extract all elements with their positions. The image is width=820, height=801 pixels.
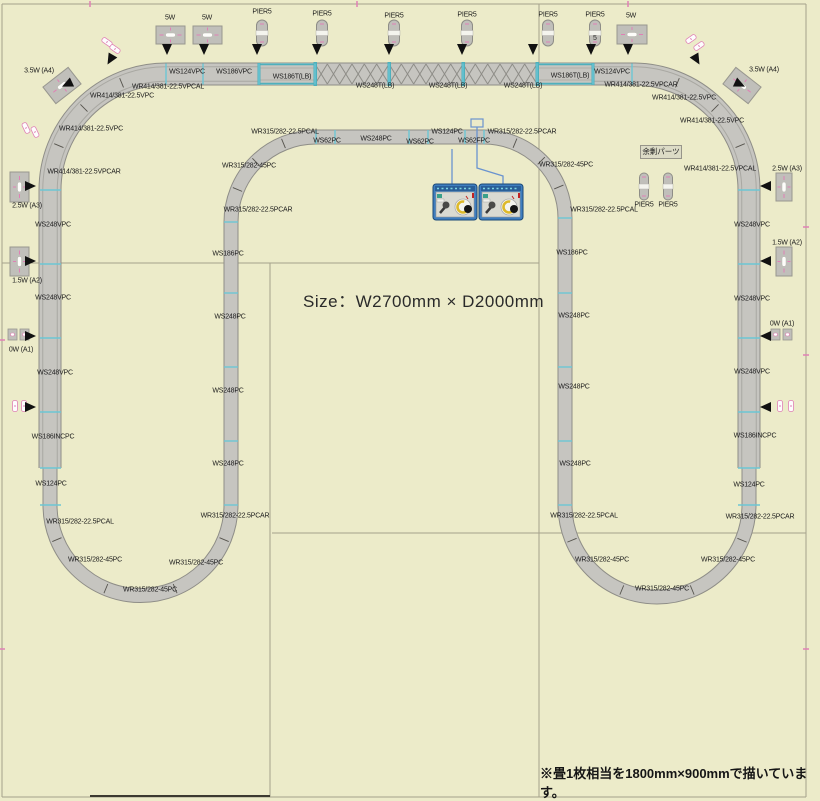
support-box-part: [774, 333, 778, 336]
controller-lever-knob: [489, 202, 496, 209]
pier-band: [542, 31, 554, 36]
pier-band: [256, 31, 268, 36]
joint-arrow-marker: [25, 181, 36, 191]
track-piece-label: WR315/282-45PC: [222, 163, 276, 170]
support-box-part: [203, 33, 213, 37]
mini-part-icon: [109, 44, 121, 54]
support-box-group: [776, 173, 792, 201]
track-piece-label: WR315/282-22.5PCAR: [201, 513, 270, 520]
track-piece-label: WS248PC: [559, 461, 590, 468]
track-piece-label: WS62PC: [313, 138, 341, 145]
joint-arrow-marker: [760, 331, 771, 341]
track-piece-label: WR315/282-45PC: [123, 587, 177, 594]
size-label: Size：W2700mm × D2000mm: [303, 287, 544, 312]
track-piece-label: WS248PC: [360, 136, 391, 143]
mini-part-icon: [13, 401, 18, 412]
support-box-group: [193, 26, 222, 44]
surplus-parts-label: 余剰パーツ: [640, 145, 682, 159]
track-piece-label: PIER5: [634, 202, 654, 209]
track-piece-label: WR315/282-22.5PCAL: [570, 207, 638, 214]
track-piece-label: WS62PC: [406, 139, 434, 146]
support-box-group: [617, 25, 647, 44]
track-piece-label: WS186VPC: [216, 69, 252, 76]
track-piece-label: PIER5: [658, 202, 678, 209]
track-piece-label: WR315/282-22.5PCAL: [46, 519, 114, 526]
joint-arrow-marker: [760, 402, 771, 412]
track-piece-label: WS186PC: [212, 251, 243, 258]
support-box-group: [156, 26, 185, 44]
track-piece-label: WS248VPC: [734, 369, 770, 376]
pier-band: [461, 31, 473, 36]
support-box-part: [782, 257, 786, 267]
support-box-part: [18, 257, 22, 267]
track-piece-label: WS124PC: [35, 481, 66, 488]
track-piece-label: 0W (A1): [770, 321, 794, 328]
joint-arrow-marker: [25, 331, 36, 341]
pier-band: [663, 184, 673, 189]
support-box-part: [782, 182, 786, 192]
support-box-group: [776, 247, 792, 276]
mini-part-icon: [778, 401, 783, 412]
track-piece-label: WR315/282-45PC: [68, 557, 122, 564]
track-piece-label: WS62FPC: [458, 138, 490, 145]
track-piece-label: WS124VPC: [169, 69, 205, 76]
joint-arrow-marker: [623, 44, 633, 55]
track-piece-label: WS248T(LB): [504, 83, 542, 90]
track-piece-label: WS186T(LB): [273, 74, 311, 81]
track-piece-label: WR414/381-22.5VPCAL: [684, 166, 756, 173]
support-box-part: [786, 333, 790, 336]
track-piece-label: WR414/381-22.5VPC: [680, 118, 744, 125]
track-piece-label: WR315/282-22.5PCAL: [251, 129, 319, 136]
track-piece-label: WR315/282-45PC: [701, 557, 755, 564]
joint-arrow-marker: [384, 44, 394, 55]
track-piece-label: WS248PC: [212, 388, 243, 395]
controller-red-mark: [518, 193, 520, 198]
track-piece-label: WR414/381-22.5VPCAL: [132, 84, 204, 91]
track-piece-label: WS248VPC: [35, 295, 71, 302]
joint-arrow-marker: [690, 53, 704, 68]
track-piece-label: WS248VPC: [37, 370, 73, 377]
track-piece-label: 3.5W (A4): [24, 68, 54, 75]
joint-arrow-marker: [162, 44, 172, 55]
track-piece-label: WR315/282-45PC: [169, 560, 223, 567]
track-piece-label: WS248T(LB): [356, 83, 394, 90]
track-piece-label: WS186INCPC: [734, 433, 777, 440]
track-piece-label: WS124PC: [733, 482, 764, 489]
controller-knob: [464, 205, 472, 213]
track-piece-label: PIER5: [538, 12, 558, 19]
joint-arrow-marker: [760, 256, 771, 266]
track-piece-label: 5W: [626, 13, 637, 20]
track-piece-label: PIER5: [457, 12, 477, 19]
controller-red-mark: [472, 193, 474, 198]
joint-arrow-marker: [528, 44, 538, 55]
pier-band: [316, 31, 328, 36]
pier-inner-label: 5: [593, 35, 597, 42]
mini-part-icon: [789, 401, 794, 412]
track-piece-label: WS248PC: [214, 314, 245, 321]
track-piece-label: WS248T(LB): [429, 83, 467, 90]
track-piece-label: WR315/282-22.5PCAR: [488, 129, 557, 136]
track-piece-label: 3.5W (A4): [749, 67, 779, 74]
track-piece-label: WS248PC: [558, 384, 589, 391]
track-piece-label: 1.5W (A2): [772, 240, 802, 247]
track-piece-label: 5W: [165, 15, 176, 22]
track-piece-label: WR414/381-22.5VPC: [652, 95, 716, 102]
support-box-group: [771, 329, 792, 340]
track-piece-label: PIER5: [312, 11, 332, 18]
track-piece-label: WR315/282-45PC: [575, 557, 629, 564]
joint-arrow-marker: [457, 44, 467, 55]
track-piece-label: WS248VPC: [734, 296, 770, 303]
track-piece-label: WR315/282-22.5PCAR: [726, 514, 795, 521]
track-piece-label: PIER5: [585, 12, 605, 19]
controller-label: [483, 199, 490, 202]
controller-chip: [437, 194, 442, 198]
controller-lever-knob: [443, 202, 450, 209]
track-piece-label: WS248PC: [212, 461, 243, 468]
support-box-part: [627, 33, 637, 37]
track-piece-label: WS186T(LB): [551, 73, 589, 80]
track-piece-label: WS186PC: [556, 250, 587, 257]
joint-arrow-marker: [25, 256, 36, 266]
track-piece-label: 2.5W (A3): [12, 203, 42, 210]
track-piece-label: WR414/381-22.5VPC: [90, 93, 154, 100]
controller-knob: [510, 205, 518, 213]
mini-part-icon: [21, 122, 30, 134]
joint-arrow-marker: [199, 44, 209, 55]
track-plan-svg: 55W5W5WPIER5PIER5PIER5PIER5PIER5PIER53.5…: [0, 0, 820, 801]
feeder-symbol: [471, 119, 483, 127]
mini-part-icon: [693, 41, 705, 51]
track-piece-label: WR414/381-22.5VPCAR: [604, 82, 677, 89]
track-piece-label: 1.5W (A2): [12, 278, 42, 285]
track-piece-label: WR315/282-22.5PCAL: [550, 513, 618, 520]
support-box-part: [18, 182, 22, 192]
track-piece-label: PIER5: [252, 9, 272, 16]
joint-arrow-marker: [103, 53, 117, 68]
track-piece-label: 0W (A1): [9, 347, 33, 354]
joint-arrow-marker: [25, 402, 36, 412]
track-piece-label: WS186INCPC: [32, 434, 75, 441]
track-piece-label: WR414/381-22.5VPCAR: [47, 169, 120, 176]
support-box-part: [166, 33, 176, 37]
track-piece-label: WR315/282-22.5PCAR: [224, 207, 293, 214]
footnote: ※畳1枚相当を1800mm×900mmで描いています。: [540, 763, 820, 801]
track-piece-label: WS248VPC: [734, 222, 770, 229]
joint-arrow-marker: [312, 44, 322, 55]
controller-label: [437, 199, 444, 202]
controller-chip: [483, 194, 488, 198]
joint-arrow-marker: [252, 44, 262, 55]
track-piece-label: 2.5W (A3): [772, 166, 802, 173]
track-piece-label: WS124PC: [431, 129, 462, 136]
track-piece-label: WR315/282-45PC: [635, 586, 689, 593]
track-piece-label: 5W: [202, 15, 213, 22]
track-piece-label: WS248VPC: [35, 222, 71, 229]
track-piece-label: PIER5: [384, 13, 404, 20]
track-piece-label: WR414/381-22.5VPC: [59, 126, 123, 133]
mini-part-icon: [685, 34, 697, 44]
pier-band: [388, 31, 400, 36]
pier-band: [639, 184, 649, 189]
track-piece-label: WR315/282-45PC: [539, 162, 593, 169]
joint-arrow-marker: [760, 181, 771, 191]
joint-arrow-marker: [586, 44, 596, 55]
support-box-part: [11, 333, 15, 336]
track-piece-label: WS124VPC: [594, 69, 630, 76]
track-plan-canvas: 55W5W5WPIER5PIER5PIER5PIER5PIER5PIER53.5…: [0, 0, 820, 801]
track-piece-label: WS248PC: [558, 313, 589, 320]
mini-part-icon: [30, 126, 39, 138]
